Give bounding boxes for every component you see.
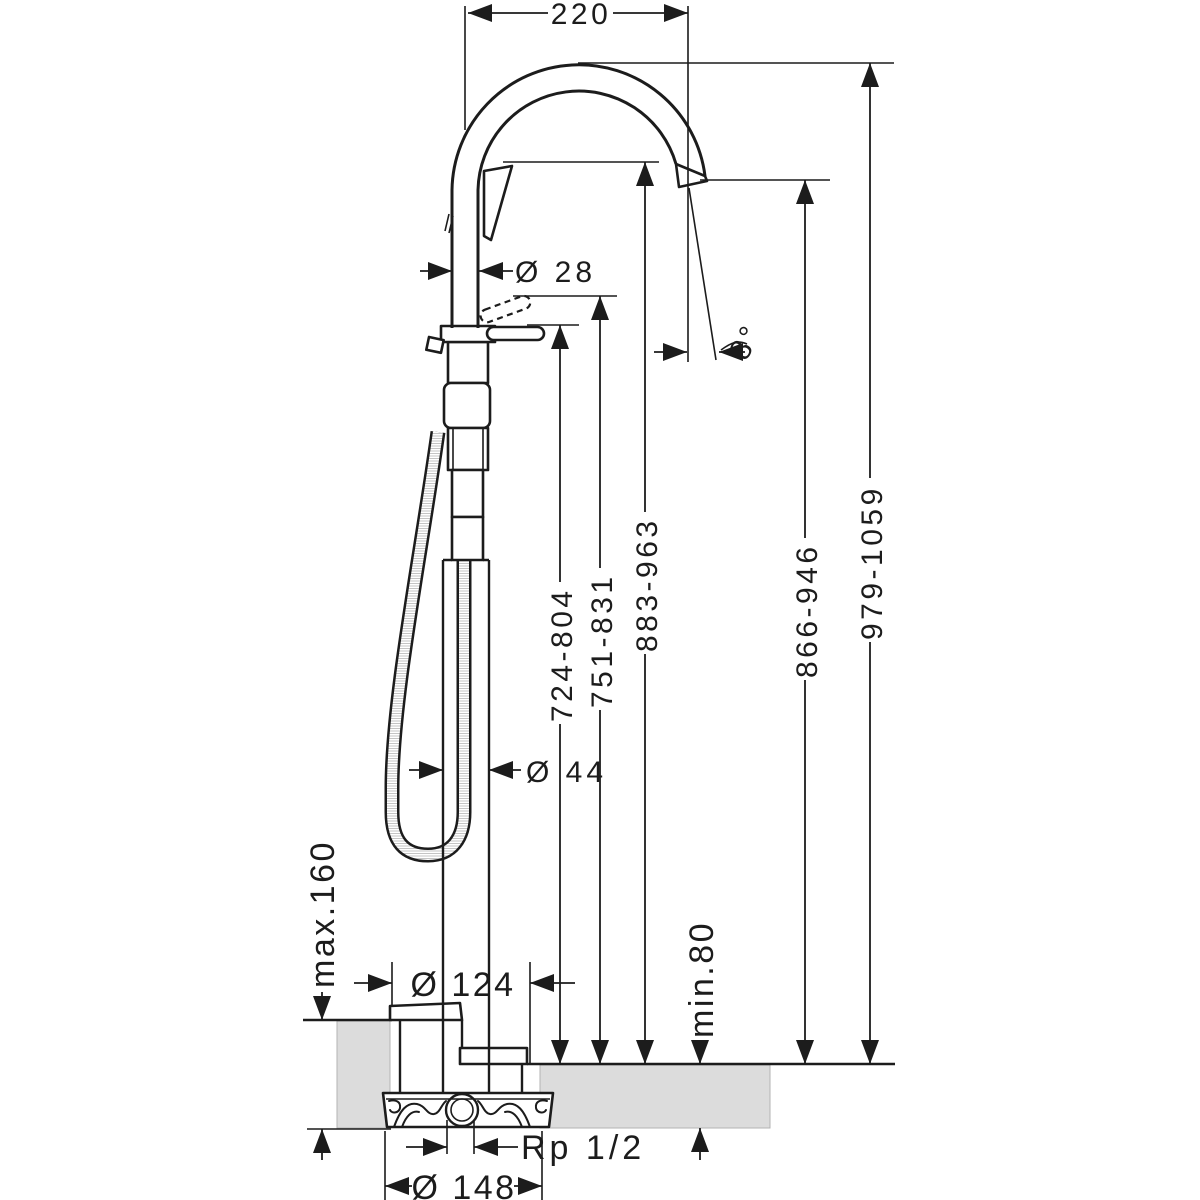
body-grip-section: [444, 383, 490, 428]
dim-label-overall-height: 979-1059: [856, 485, 889, 640]
finished-floor-left: [337, 1021, 390, 1128]
dim-floor-buildup-max: max.160: [304, 840, 342, 1160]
dim-label-spout-pipe-diameter: Ø 28: [515, 256, 596, 289]
base-plate-lower: [460, 1048, 527, 1064]
drawing-page: 220 Ø 28 8° 724-804 751-831: [0, 0, 1200, 1200]
screed-floor-right: [540, 1065, 770, 1128]
spout-inner-contour: [478, 91, 676, 328]
body-lower-section: [452, 470, 483, 517]
dim-label-floor-buildup-max: max.160: [304, 840, 342, 988]
lever-handle: [487, 327, 544, 340]
hand-shower-head: [484, 166, 512, 240]
dim-overall-height: 979-1059: [578, 63, 894, 1064]
base-assembly: [383, 1003, 553, 1127]
body-mid-section: [448, 428, 488, 470]
technical-drawing-canvas: 220 Ø 28 8° 724-804 751-831: [0, 0, 1200, 1200]
hose-outlet-section: [452, 517, 483, 560]
dim-label-riser-diameter: Ø 44: [526, 756, 607, 789]
dim-spout-pipe-diameter: Ø 28: [420, 256, 596, 289]
dim-label-base-plate-diameter: Ø 124: [410, 966, 515, 1004]
dim-spout-angle: 8°: [654, 188, 769, 365]
lever-handle-raised-position: [479, 294, 532, 324]
dim-label-spout-outlet-height: 866-946: [791, 543, 824, 678]
base-plate-upper: [390, 1003, 462, 1020]
cartridge-housing: [448, 342, 488, 383]
dim-rough-in-diameter: Ø 148: [385, 1131, 542, 1200]
hose-hook: [426, 337, 443, 353]
dim-label-lever-raised-height: 751-831: [586, 573, 619, 708]
dim-label-rough-in-diameter: Ø 148: [411, 1169, 516, 1200]
dim-lever-height: 724-804: [527, 325, 579, 1064]
dim-label-handshower-height: 883-963: [631, 517, 664, 652]
dim-label-screed-min: min.80: [683, 921, 721, 1038]
dim-label-lever-height: 724-804: [546, 587, 579, 722]
dim-riser-diameter: Ø 44: [409, 756, 607, 789]
dim-label-spout-angle: 8°: [723, 318, 769, 365]
dim-label-spout-reach: 220: [551, 0, 612, 31]
dim-label-connection-thread: Rp 1/2: [521, 1129, 645, 1167]
